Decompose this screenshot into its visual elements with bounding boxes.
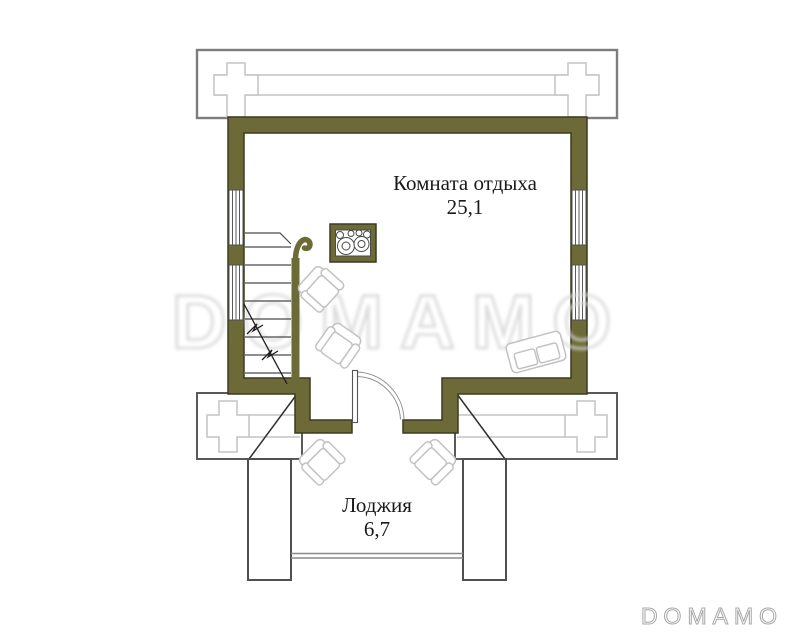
footer-logo: DOMAMO <box>641 603 783 629</box>
door-swing-arc <box>358 372 404 420</box>
loggia-railing <box>291 554 463 559</box>
right-terrace-block <box>455 393 617 459</box>
door-swing-arc <box>358 377 401 420</box>
left-terrace-block <box>197 393 302 459</box>
armchair-icon <box>409 435 460 486</box>
overhang-outline <box>197 50 617 118</box>
room-area: 6,7 <box>364 517 390 541</box>
floor-plan-page: DOMAMO Комната отдыха 25,1 Лоджия 6,7 DO… <box>0 0 800 640</box>
room-name: Лоджия <box>342 493 412 517</box>
loggia-left-pillar <box>248 459 291 580</box>
top-overhang-block <box>197 50 617 118</box>
room-area: 25,1 <box>447 195 484 219</box>
room-name: Комната отдыха <box>393 171 538 195</box>
loggia-right-pillar <box>463 459 506 580</box>
stair-top-edge <box>245 233 291 244</box>
room-walls <box>228 117 587 433</box>
railing-curl-icon <box>295 240 310 262</box>
door-leaf <box>353 371 358 423</box>
floor-plan-drawing: DOMAMO Комната отдыха 25,1 Лоджия 6,7 DO… <box>0 0 800 640</box>
loggia-door <box>353 371 405 423</box>
stove-icon <box>330 224 376 262</box>
armchair-icon <box>295 435 346 486</box>
